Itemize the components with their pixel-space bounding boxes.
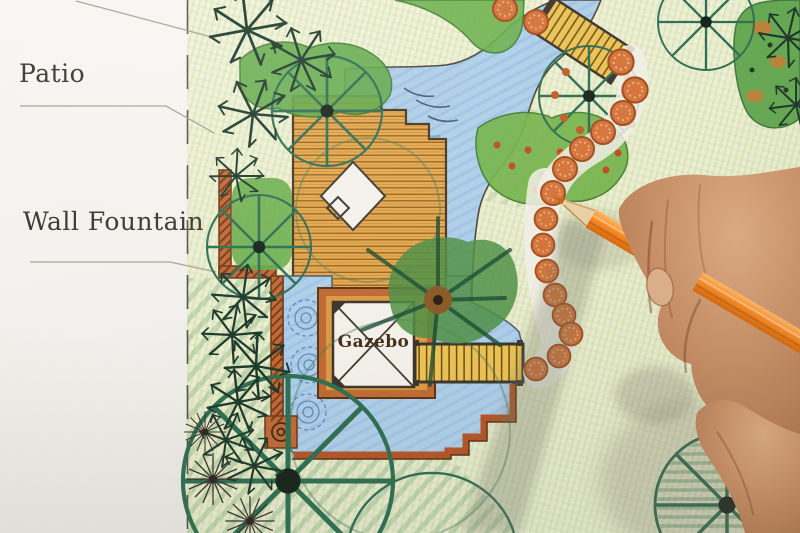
gazebo-label: Gazebo bbox=[333, 332, 414, 352]
top-right-shrub bbox=[734, 0, 800, 128]
leader-line-top bbox=[76, 1, 212, 37]
plan-drawing-svg bbox=[0, 0, 800, 533]
photo-landscape-plan: Patio Wall Fountain Gazebo bbox=[0, 0, 800, 533]
patio-label: Patio bbox=[19, 59, 85, 88]
leader-line-wall-fountain bbox=[30, 262, 216, 272]
leader-line-patio bbox=[20, 106, 214, 133]
wall-fountain-label: Wall Fountain bbox=[23, 207, 204, 236]
